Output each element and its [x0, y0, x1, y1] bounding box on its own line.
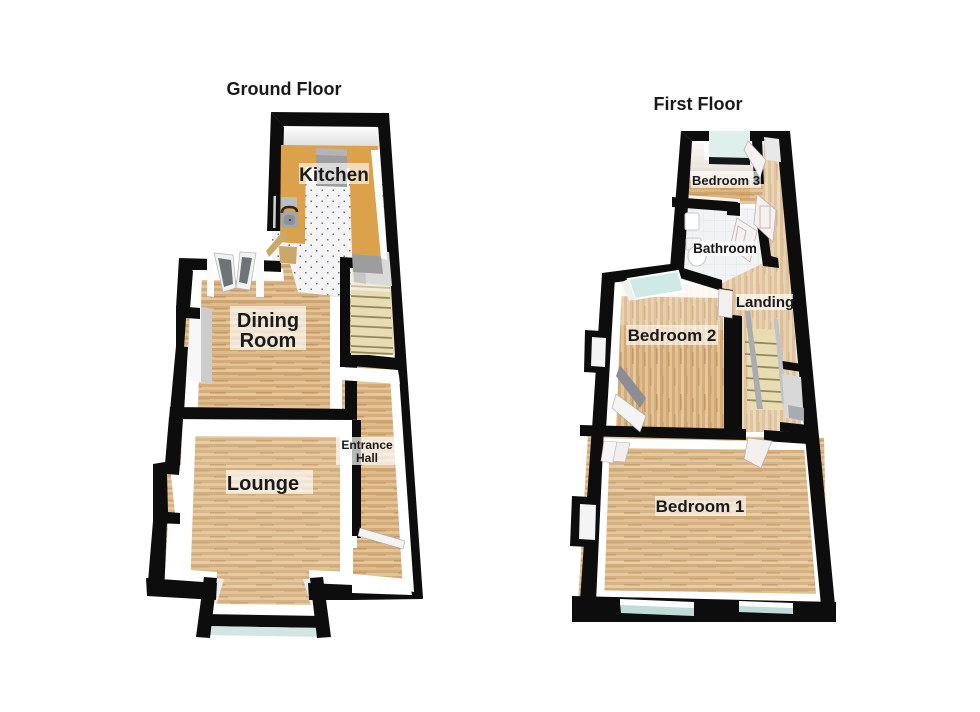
svg-text:Bathroom: Bathroom	[693, 241, 757, 256]
svg-text:Ground Floor: Ground Floor	[227, 79, 342, 99]
svg-text:Entrance: Entrance	[341, 438, 393, 452]
svg-text:Hall: Hall	[356, 451, 378, 465]
svg-text:Dining: Dining	[237, 310, 299, 332]
svg-text:Bedroom 3: Bedroom 3	[692, 173, 760, 188]
svg-text:Kitchen: Kitchen	[299, 165, 369, 186]
svg-text:Bedroom 2: Bedroom 2	[628, 326, 717, 345]
svg-text:Bedroom 1: Bedroom 1	[656, 497, 745, 516]
svg-text:Room: Room	[240, 330, 297, 352]
svg-text:Landing: Landing	[736, 294, 794, 311]
svg-text:Lounge: Lounge	[227, 473, 299, 495]
svg-text:First Floor: First Floor	[654, 94, 743, 114]
